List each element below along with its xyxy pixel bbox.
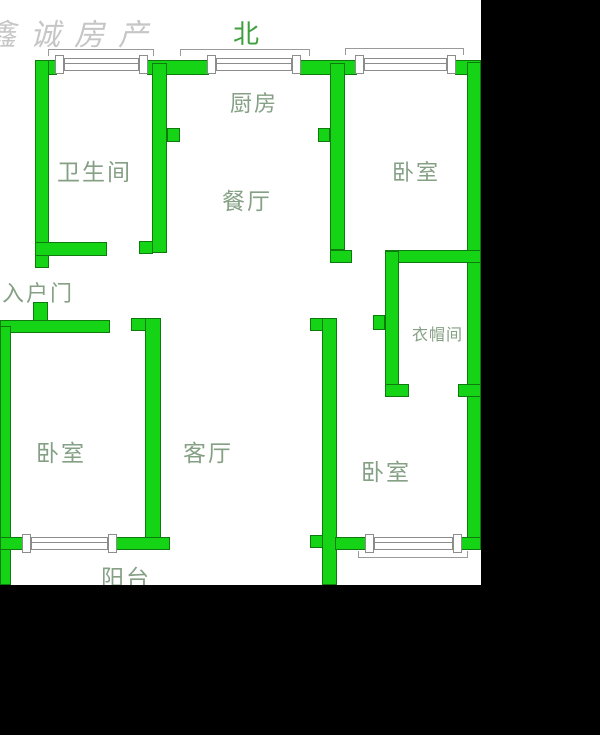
window-glass-icon bbox=[31, 537, 108, 550]
floorplan-canvas: 鑫诚房产 北 bbox=[0, 0, 600, 735]
window-glass-icon bbox=[374, 537, 453, 550]
window-post-icon bbox=[365, 534, 374, 553]
window-post-icon bbox=[355, 55, 364, 74]
window-post-icon bbox=[292, 55, 301, 74]
bedroom-br-window-icon bbox=[365, 534, 462, 553]
room-label-living-room: 客厅 bbox=[183, 434, 233, 468]
wall-top-c bbox=[300, 60, 357, 75]
wall-kitchen-east-foot bbox=[330, 250, 352, 263]
bedroom-left-window-icon bbox=[22, 534, 117, 553]
wall-cloakroom-west-stub bbox=[373, 315, 385, 330]
wall-kitchen-east bbox=[330, 63, 345, 250]
room-label-bathroom: 卫生间 bbox=[57, 153, 132, 187]
wall-living-west bbox=[145, 318, 161, 550]
wall-bedroom-left-south-a bbox=[0, 537, 24, 550]
wall-divider-foot bbox=[139, 241, 153, 254]
room-label-bedroom-left: 卧室 bbox=[36, 434, 86, 468]
room-label-dining: 餐厅 bbox=[222, 182, 272, 216]
wall-living-east-foot-bottom bbox=[310, 535, 323, 548]
room-label-cloakroom: 衣帽间 bbox=[412, 321, 463, 345]
room-label-entry-door: 入户门 bbox=[2, 276, 74, 308]
kitchen-window-icon bbox=[207, 55, 301, 74]
compass-north-label: 北 bbox=[233, 14, 259, 51]
wall-bedroom-left-north bbox=[0, 320, 110, 333]
wall-bedroom-br-south-a bbox=[335, 537, 367, 550]
wall-bedroom-left-south-b bbox=[113, 537, 170, 550]
window-post-icon bbox=[453, 534, 462, 553]
window-glass-icon bbox=[216, 58, 292, 71]
bottom-crop-mask bbox=[0, 585, 600, 735]
window-glass-icon bbox=[64, 58, 139, 71]
bathroom-window-icon bbox=[55, 55, 148, 74]
agency-watermark: 鑫诚房产 bbox=[0, 10, 162, 54]
bedroom-tr-window-icon bbox=[355, 55, 456, 74]
room-label-bedroom-bottom-right: 卧室 bbox=[361, 453, 411, 487]
wall-bedroom-tr-south bbox=[385, 250, 481, 263]
window-post-icon bbox=[447, 55, 456, 74]
room-label-kitchen: 厨房 bbox=[230, 86, 278, 118]
wall-kitchen-east-stub bbox=[318, 128, 330, 142]
window-post-icon bbox=[139, 55, 148, 74]
window-post-icon bbox=[108, 534, 117, 553]
wall-bath-dining-divider bbox=[152, 63, 167, 253]
wall-bathroom-south bbox=[35, 242, 107, 256]
window-post-icon bbox=[207, 55, 216, 74]
window-sill bbox=[345, 48, 464, 55]
wall-left-upper bbox=[35, 60, 49, 268]
wall-cloakroom-south-b bbox=[458, 384, 481, 397]
window-post-icon bbox=[55, 55, 64, 74]
room-label-bedroom-top-right: 卧室 bbox=[392, 155, 440, 187]
wall-bedroom-br-south-b bbox=[460, 537, 481, 550]
window-glass-icon bbox=[364, 58, 447, 71]
window-post-icon bbox=[22, 534, 31, 553]
wall-cloakroom-south-a bbox=[385, 384, 409, 397]
wall-right-outer bbox=[467, 62, 481, 550]
wall-cloakroom-west bbox=[385, 251, 399, 397]
wall-dining-stub-west bbox=[167, 128, 180, 142]
